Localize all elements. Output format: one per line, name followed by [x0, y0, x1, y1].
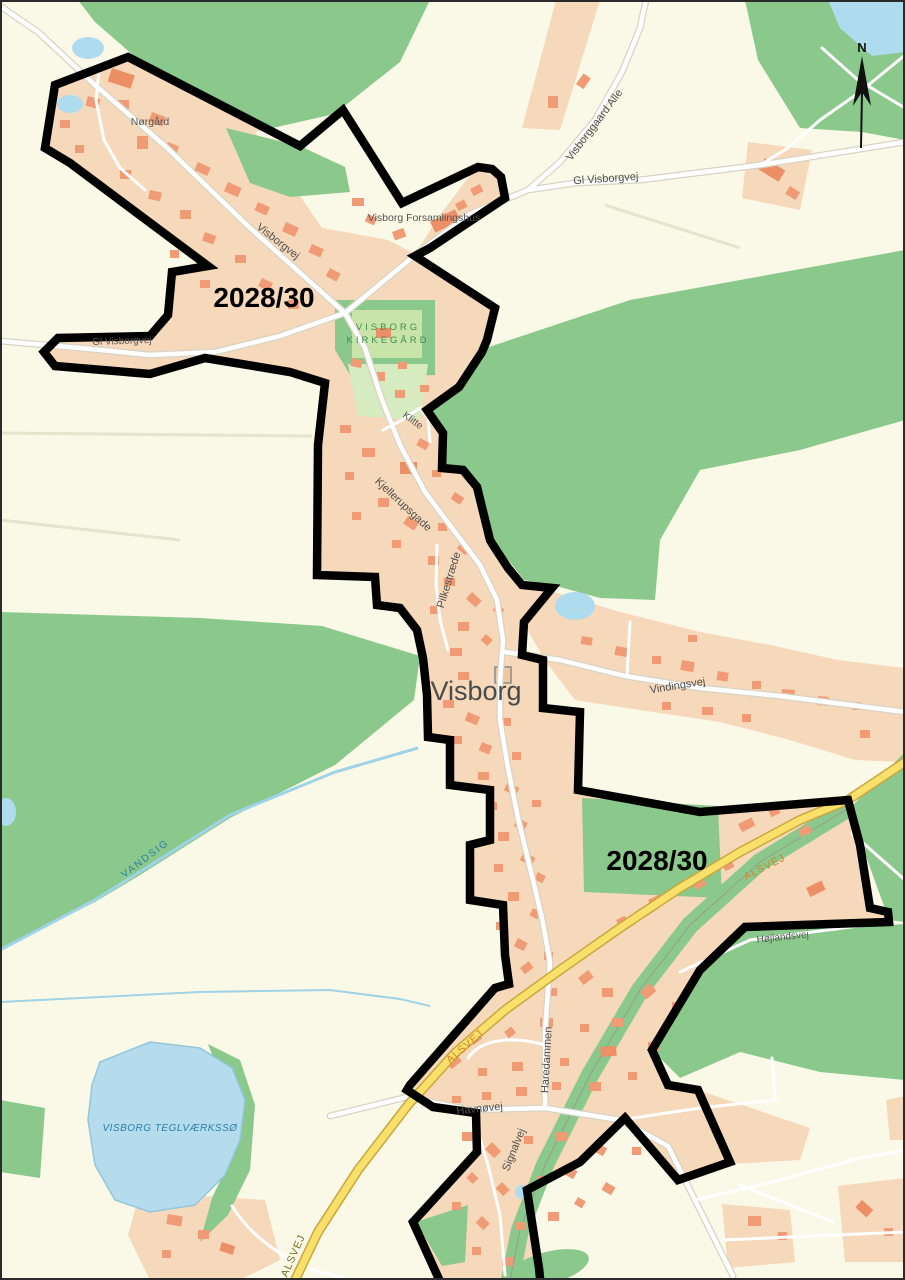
pond-3	[555, 592, 595, 620]
place-label-norgard: Nørgård	[131, 116, 170, 128]
water-label-teglvaerksso: VISBORG TEGLVÆRKSSØ	[102, 1123, 238, 1134]
plan-map: Nørgård Visborgvej Visborg Forsamlingshu…	[0, 0, 905, 1280]
place-label-kirkegaard-line2: KIRKEGÅRD	[347, 335, 430, 346]
street-label-gl-visborgvej-west: Gl Visborgvej	[92, 335, 152, 348]
pond-2	[57, 95, 83, 113]
town-label-visborg: Visborg	[430, 676, 521, 706]
pond-1	[72, 37, 104, 59]
map-canvas: Nørgård Visborgvej Visborg Forsamlingshu…	[0, 0, 905, 1280]
place-label-forsamlingshus: Visborg Forsamlingshus	[368, 212, 480, 224]
plan-id-label-south: 2028/30	[606, 845, 707, 876]
plan-id-label-north: 2028/30	[213, 282, 314, 313]
place-label-kirkegaard-line1: VISBORG	[356, 322, 420, 333]
compass-north-label: N	[857, 40, 866, 55]
